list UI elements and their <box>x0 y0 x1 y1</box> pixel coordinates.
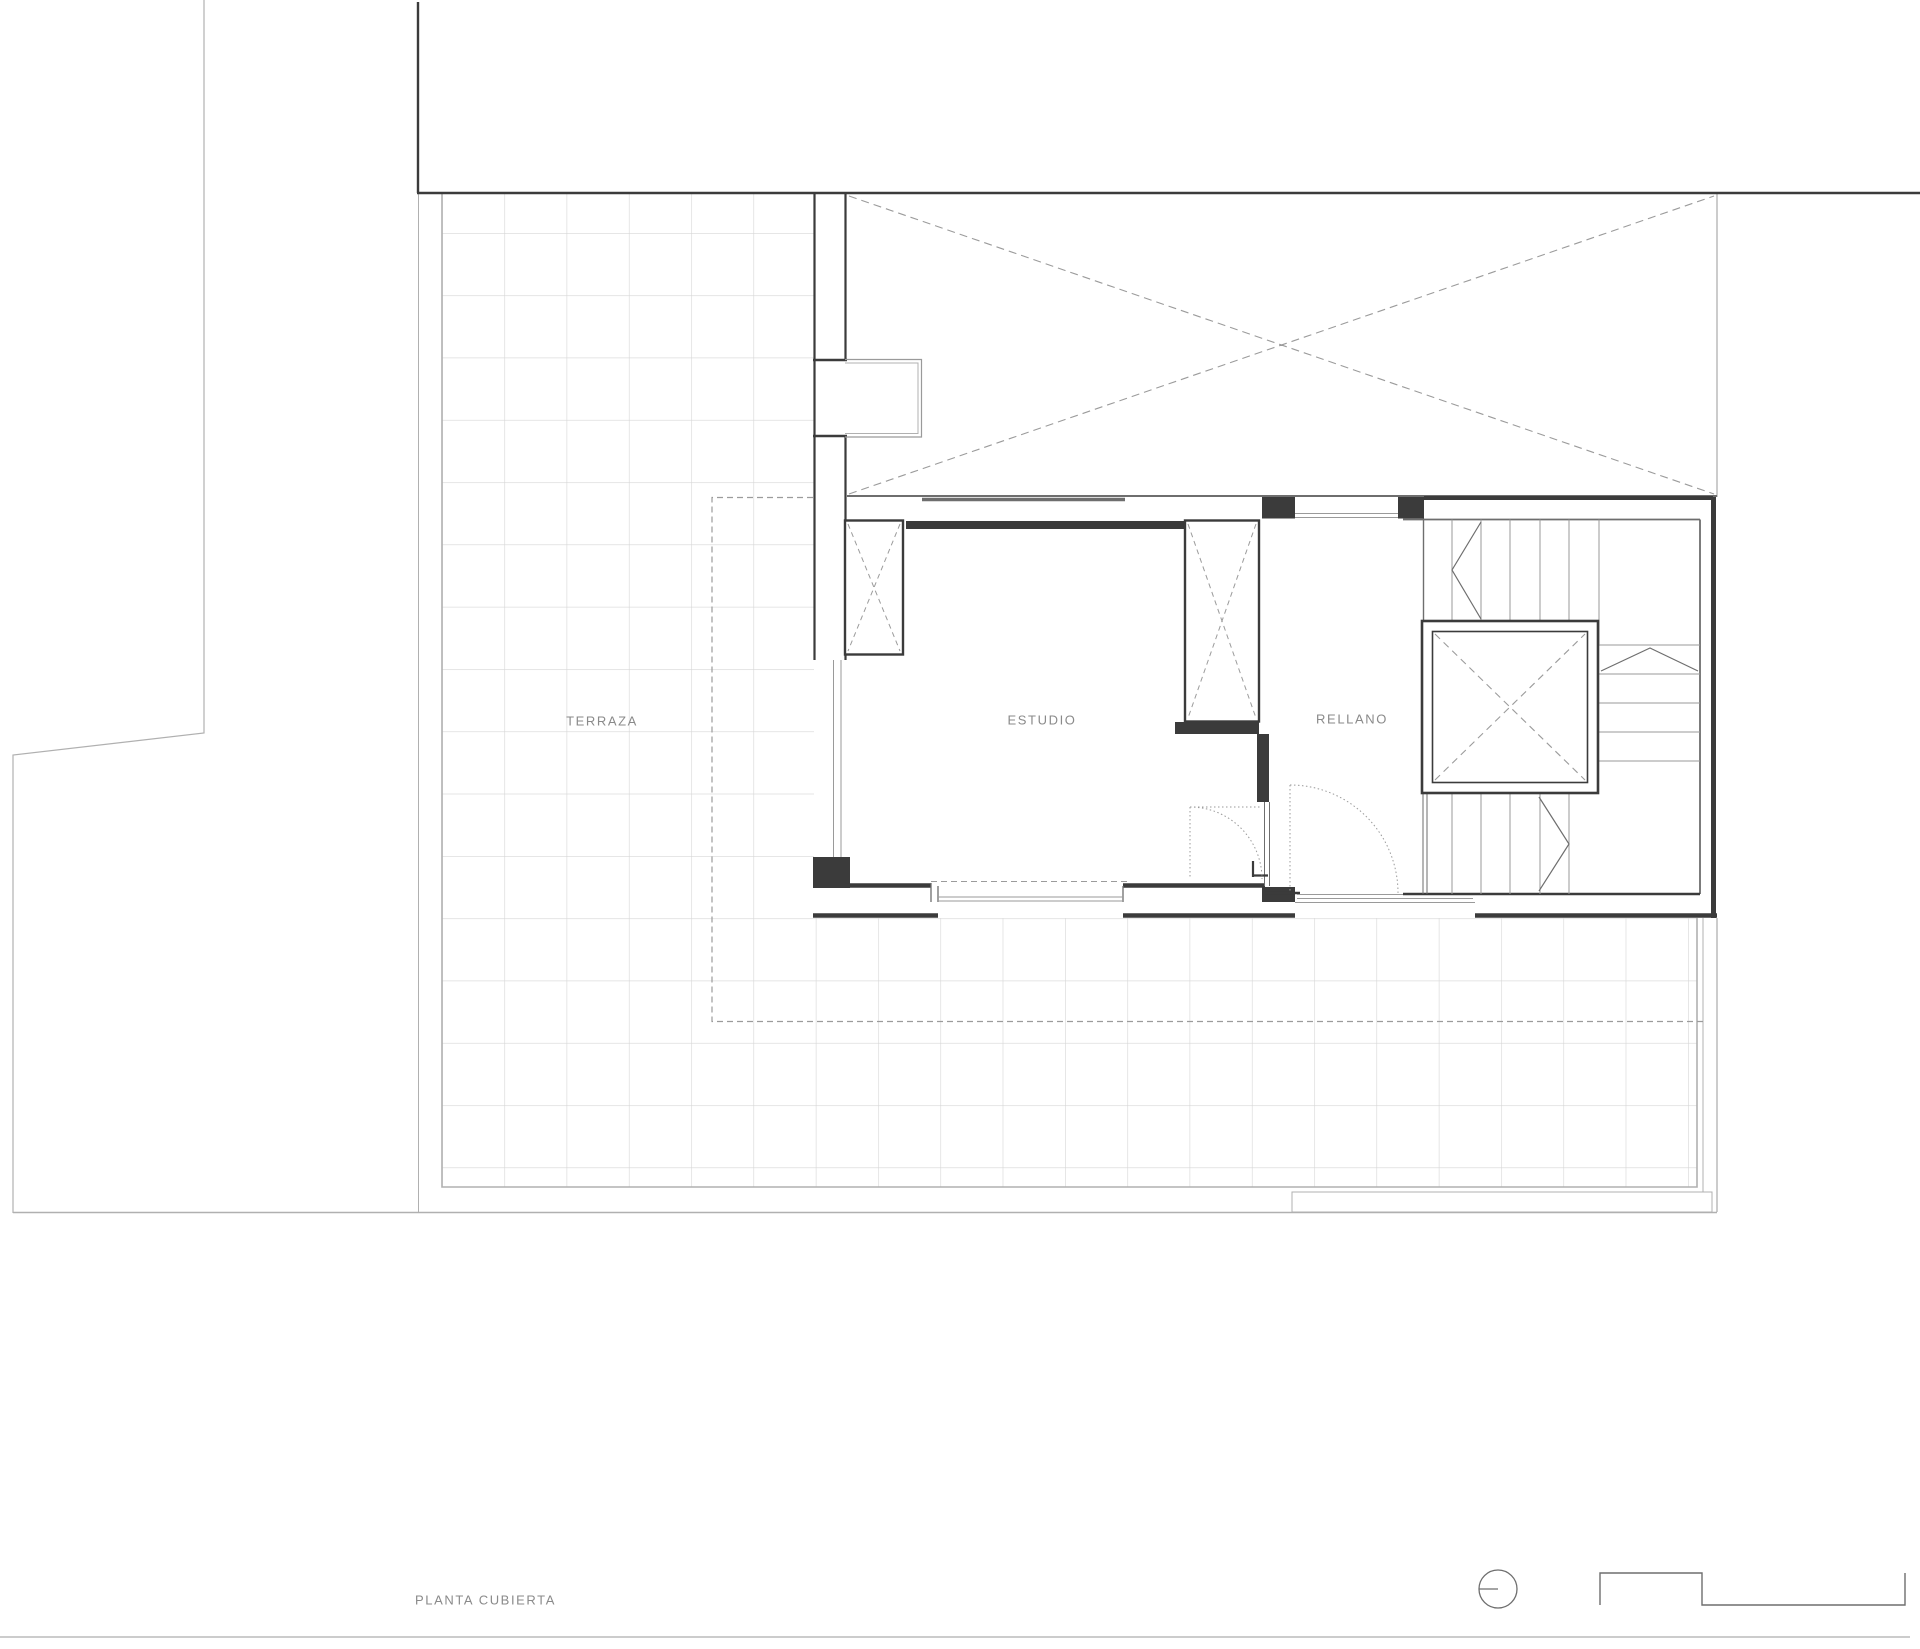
floor-plan-drawing <box>0 0 1920 1649</box>
estudio-room <box>845 521 1270 887</box>
stair-arrow-chevron <box>1601 648 1698 671</box>
roof-void-area <box>847 196 1717 500</box>
stair-arrow-chevron <box>1539 797 1569 891</box>
west-window <box>834 660 842 857</box>
rellano-north-wall <box>1262 497 1424 519</box>
section-profile-symbol <box>1600 1573 1905 1605</box>
pillar <box>1185 521 1259 722</box>
staircase <box>1403 497 1714 918</box>
doors <box>1190 785 1398 893</box>
floor-plan-sheet: TERRAZAESTUDIORELLANOPLANTA CUBIERTA <box>0 0 1920 1649</box>
south-facade <box>813 882 1717 916</box>
north-boundary-wall <box>417 2 1920 193</box>
estudio-north-wall <box>906 521 1185 529</box>
estudio-label: ESTUDIO <box>1008 713 1077 728</box>
door-to-estudio <box>1190 807 1262 879</box>
balcony-landing <box>845 360 922 438</box>
pillar <box>845 521 903 655</box>
rellano-north-window <box>1295 514 1398 518</box>
elevator-shaft <box>1422 621 1598 793</box>
sw-corner-wall <box>813 857 850 888</box>
estudio-south-window <box>938 897 1123 901</box>
door-frame <box>1265 802 1270 886</box>
estudio-rellano-wall <box>1257 734 1269 802</box>
terraza-label: TERRAZA <box>566 714 638 729</box>
rellano-label: RELLANO <box>1316 712 1388 727</box>
stair-treads-south <box>1452 793 1569 894</box>
title-label: PLANTA CUBIERTA <box>415 1593 556 1608</box>
north-symbol <box>1479 1570 1517 1608</box>
wall-stub <box>1175 722 1259 734</box>
stair-treads-east <box>1599 645 1700 761</box>
door-to-rellano <box>1290 785 1398 893</box>
stair-arrow-chevron <box>1452 522 1481 619</box>
